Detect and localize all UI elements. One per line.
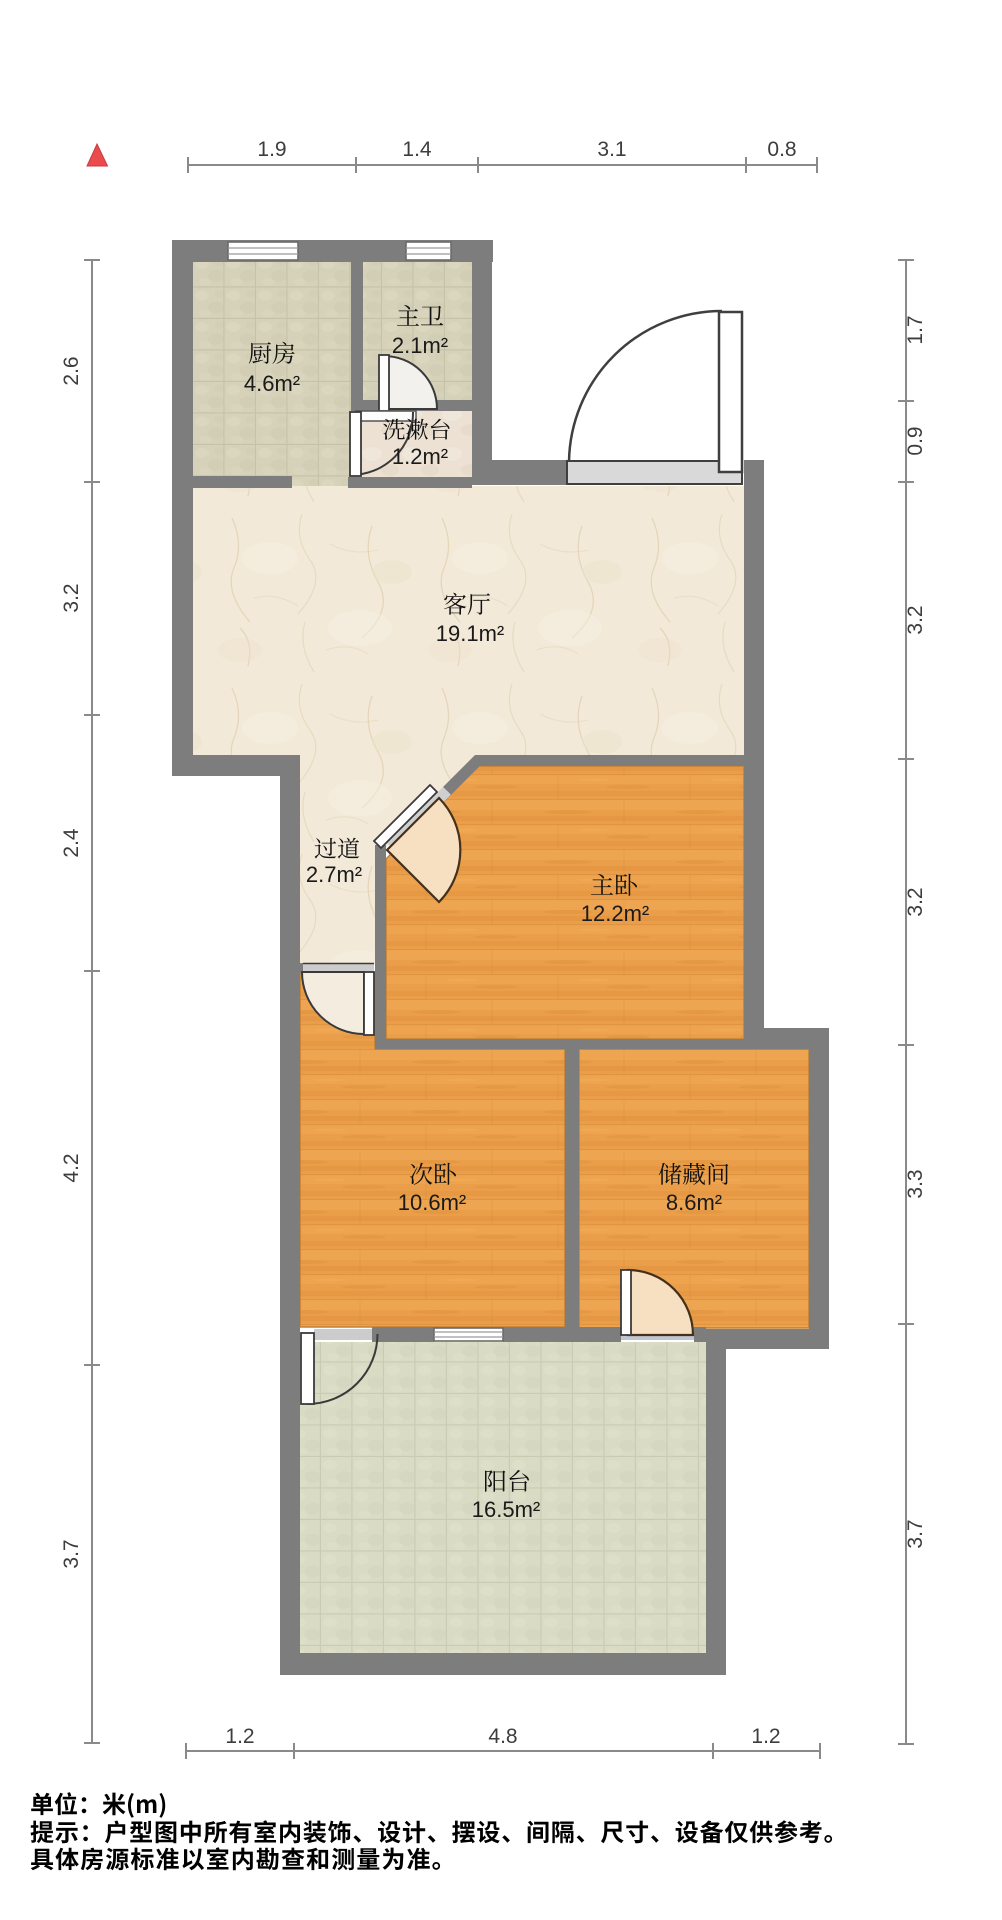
svg-text:2.6: 2.6: [60, 356, 83, 385]
svg-text:1.9: 1.9: [257, 138, 286, 161]
svg-text:3.7: 3.7: [904, 1519, 927, 1548]
svg-text:2.7m²: 2.7m²: [306, 862, 362, 887]
svg-text:3.7: 3.7: [60, 1539, 83, 1568]
svg-text:1.2m²: 1.2m²: [392, 444, 448, 469]
svg-text:0.8: 0.8: [767, 138, 796, 161]
svg-text:2.1m²: 2.1m²: [392, 333, 448, 358]
svg-text:8.6m²: 8.6m²: [666, 1190, 722, 1215]
svg-text:2.4: 2.4: [60, 828, 83, 858]
svg-text:3.3: 3.3: [904, 1169, 927, 1198]
svg-text:1.2: 1.2: [225, 1725, 254, 1748]
svg-text:3.2: 3.2: [60, 583, 83, 612]
svg-text:1.7: 1.7: [904, 315, 927, 344]
svg-text:10.6m²: 10.6m²: [398, 1190, 466, 1215]
svg-text:0.9: 0.9: [904, 426, 927, 455]
svg-text:4.6m²: 4.6m²: [244, 371, 300, 396]
svg-text:4.2: 4.2: [60, 1153, 83, 1182]
svg-text:12.2m²: 12.2m²: [581, 901, 649, 926]
svg-text:19.1m²: 19.1m²: [436, 621, 504, 646]
svg-text:1.4: 1.4: [402, 138, 432, 161]
svg-text:3.2: 3.2: [904, 887, 927, 916]
svg-text:3.2: 3.2: [904, 605, 927, 634]
svg-text:3.1: 3.1: [597, 138, 626, 161]
svg-text:1.2: 1.2: [751, 1725, 780, 1748]
svg-text:4.8: 4.8: [488, 1725, 517, 1748]
svg-text:16.5m²: 16.5m²: [472, 1497, 540, 1522]
